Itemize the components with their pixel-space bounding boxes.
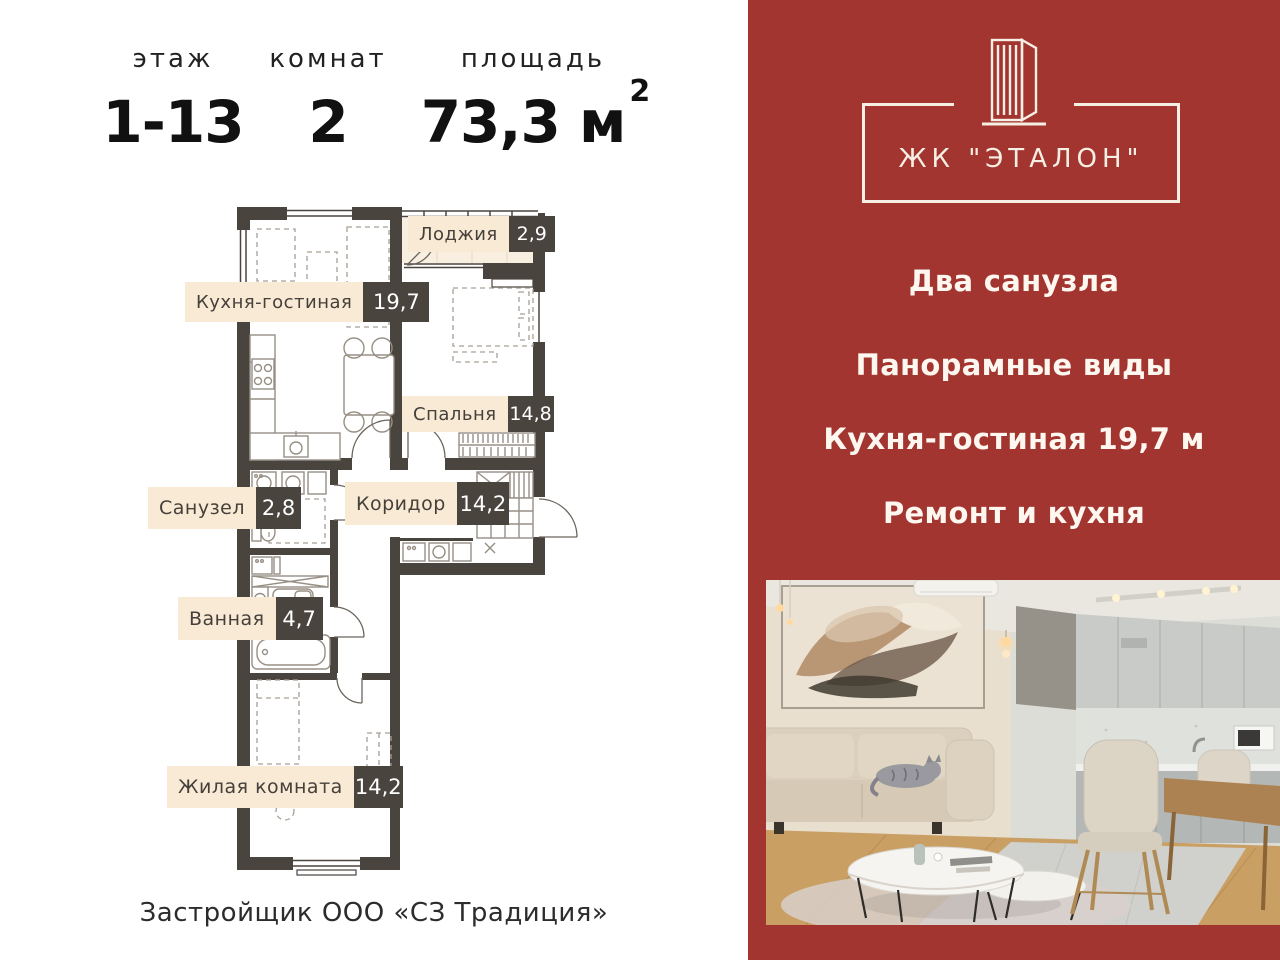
room-label-bathroom: Ванная 4,7: [178, 597, 323, 640]
developer-footer: Застройщик ООО «СЗ Традиция»: [0, 898, 748, 928]
area-superscript: 2: [629, 74, 649, 109]
feature-item: Кухня-гостиная 19,7 м: [748, 422, 1280, 456]
feature-item: Панорамные виды: [748, 348, 1280, 382]
room-name: Жилая комната: [167, 766, 354, 808]
room-name: Кухня-гостиная: [185, 282, 363, 322]
room-name: Лоджия: [408, 216, 509, 252]
room-area-badge: 4,7: [276, 597, 323, 640]
room-name: Коридор: [345, 482, 457, 525]
room-area-badge: 2,8: [256, 487, 301, 529]
room-area-badge: 14,2: [354, 766, 403, 808]
room-area-badge: 14,2: [457, 482, 509, 525]
area-number: 73,3 м: [421, 88, 626, 156]
room-area-badge: 19,7: [363, 282, 429, 322]
summary-rooms: комнат 2: [238, 44, 418, 156]
logo-text: ЖК "ЭТАЛОН": [898, 144, 1143, 200]
area-value: 73,3 м2: [408, 88, 658, 156]
feature-item: Два санузла: [748, 264, 1280, 298]
wall-art: [782, 586, 984, 708]
feature-item: Ремонт и кухня: [748, 496, 1280, 530]
room-label-wc: Санузел 2,8: [148, 487, 301, 529]
building-icon: [954, 36, 1074, 128]
interior-photo: [766, 580, 1280, 925]
room-area-badge: 2,9: [509, 216, 555, 252]
room-label-living-room: Жилая комната 14,2: [167, 766, 403, 808]
room-name: Ванная: [178, 597, 276, 640]
ac-unit: [914, 580, 998, 596]
room-label-bedroom: Спальня 14,8: [402, 396, 554, 432]
rooms-value: 2: [238, 88, 418, 156]
room-name: Санузел: [148, 487, 256, 529]
room-label-corridor: Коридор 14,2: [345, 482, 509, 525]
room-name: Спальня: [402, 396, 508, 432]
promo-panel: ЖК "ЭТАЛОН" Два санузла Панорамные виды …: [748, 0, 1280, 960]
room-area-badge: 14,8: [508, 396, 554, 432]
rooms-label: комнат: [238, 44, 418, 74]
summary-area: площадь 73,3 м2: [408, 44, 658, 156]
room-label-loggia: Лоджия 2,9: [408, 216, 555, 252]
plan-panel: этаж 1-13 комнат 2 площадь 73,3 м2: [0, 0, 748, 960]
room-label-kitchen-living: Кухня-гостиная 19,7: [185, 282, 429, 322]
flyer-page: { "summary": { "columns": [ { "label": "…: [0, 0, 1280, 960]
sofa: [766, 728, 994, 834]
area-label: площадь: [408, 44, 658, 74]
